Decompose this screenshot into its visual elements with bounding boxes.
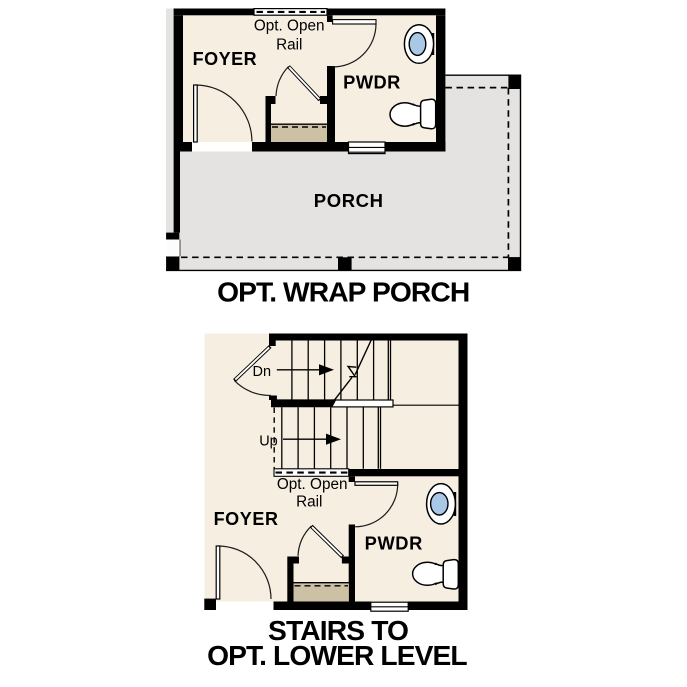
svg-text:PWDR: PWDR <box>365 533 423 554</box>
svg-text:Opt. Open: Opt. Open <box>277 476 348 493</box>
svg-text:Opt. Open: Opt. Open <box>254 18 325 35</box>
svg-text:PWDR: PWDR <box>343 72 401 93</box>
svg-text:Rail: Rail <box>276 37 302 54</box>
svg-text:OPT. LOWER LEVEL: OPT. LOWER LEVEL <box>207 639 467 671</box>
svg-text:Up: Up <box>259 433 278 449</box>
svg-text:OPT. WRAP PORCH: OPT. WRAP PORCH <box>217 275 469 307</box>
svg-text:Dn: Dn <box>253 364 272 380</box>
svg-text:PORCH: PORCH <box>314 190 384 211</box>
svg-text:Rail: Rail <box>296 493 322 510</box>
svg-text:FOYER: FOYER <box>193 49 258 69</box>
svg-text:FOYER: FOYER <box>214 509 279 529</box>
